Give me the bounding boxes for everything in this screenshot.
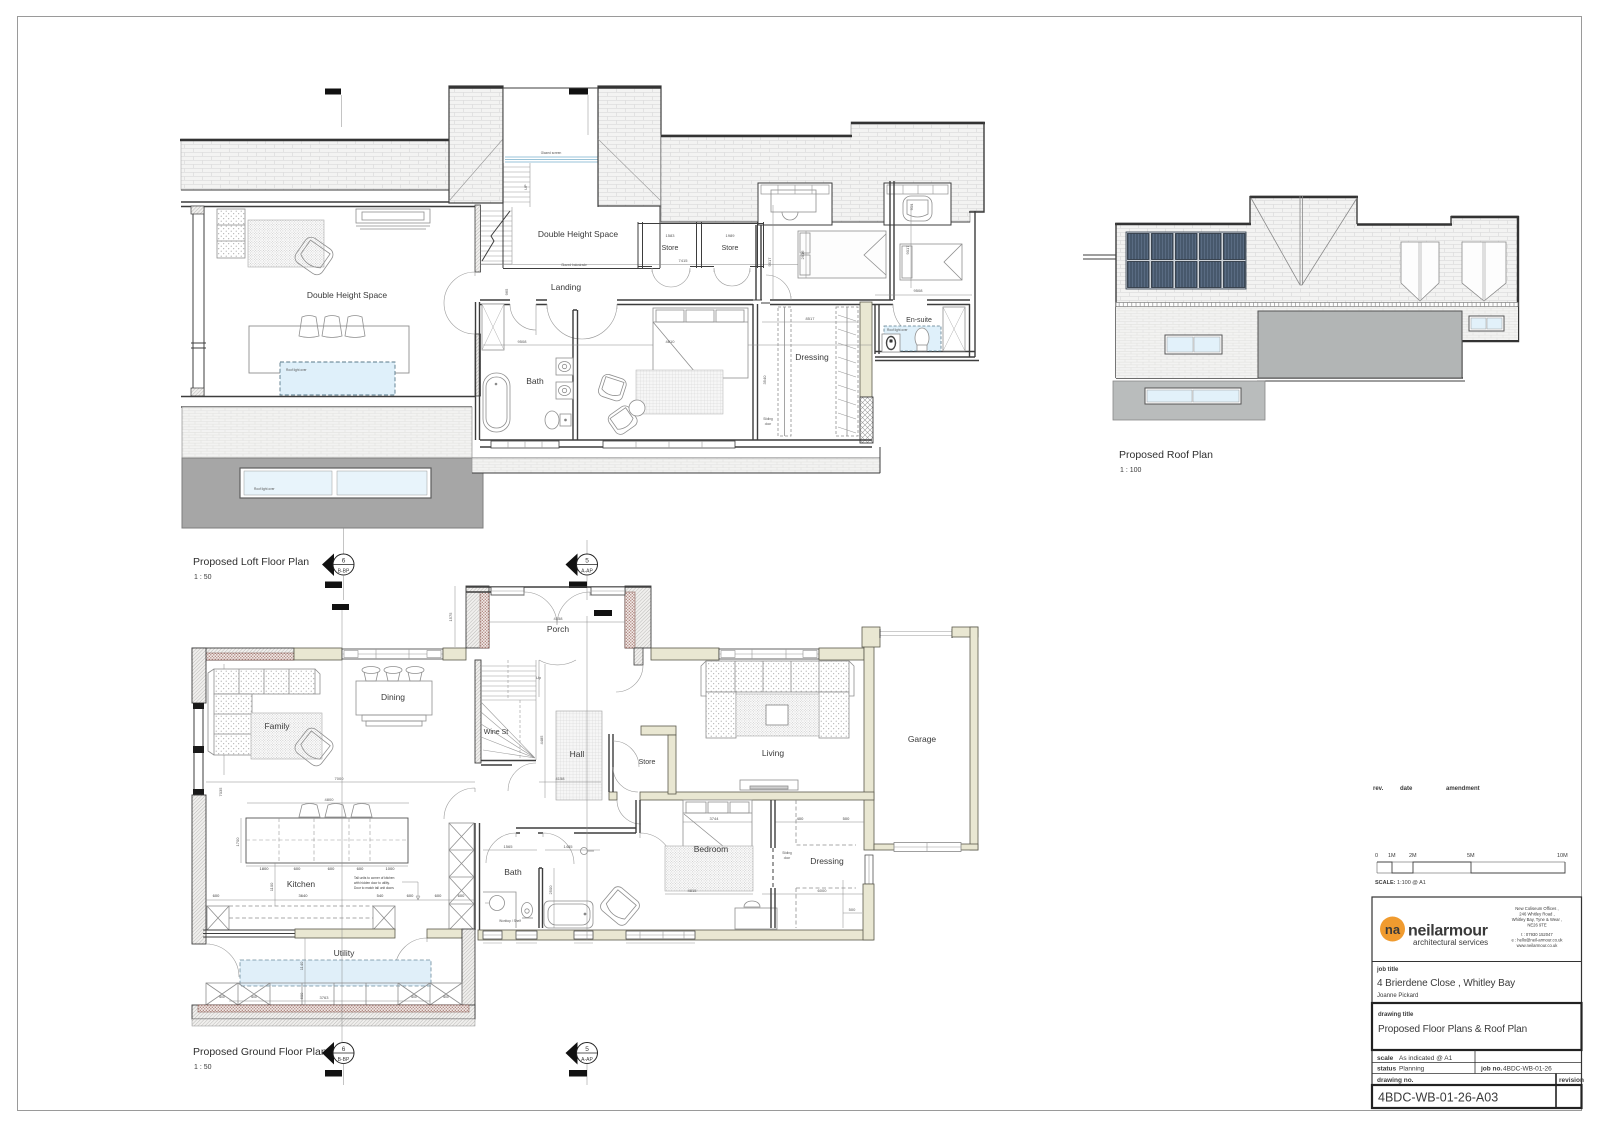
svg-text:Glazed screen: Glazed screen [541,151,562,155]
svg-text:drawing title: drawing title [1378,1012,1414,1018]
svg-text:1 : 100: 1 : 100 [1120,467,1142,474]
svg-text:Proposed Loft Floor Plan: Proposed Loft Floor Plan [193,556,309,568]
svg-text:Living: Living [762,748,784,758]
svg-text:revision: revision [1559,1077,1584,1084]
svg-text:1100: 1100 [269,882,274,891]
svg-text:amendment: amendment [1446,786,1480,792]
svg-text:Bedroom: Bedroom [694,844,729,854]
svg-text:Store: Store [639,759,656,766]
svg-text:Worktop / Shelf: Worktop / Shelf [499,919,521,923]
svg-text:1700: 1700 [235,837,240,847]
svg-text:2916: 2916 [800,250,805,260]
svg-text:600: 600 [328,866,335,871]
svg-text:UP: UP [523,184,528,190]
svg-text:Whitley Bay, Tyne & Wear ,: Whitley Bay, Tyne & Wear , [1512,917,1563,922]
svg-text:246 Whitley Road ,: 246 Whitley Road , [1519,912,1554,917]
svg-text:600: 600 [294,866,301,871]
svg-text:door: door [765,422,772,426]
svg-text:3763: 3763 [320,995,330,1000]
svg-text:6: 6 [342,558,346,565]
svg-text:400: 400 [797,816,804,821]
svg-text:B-BP: B-BP [338,569,350,575]
svg-text:1989: 1989 [726,233,736,238]
svg-text:914: 914 [909,203,914,210]
svg-text:1583: 1583 [666,233,676,238]
svg-text:9508: 9508 [518,339,528,344]
svg-text:Family: Family [264,721,290,731]
svg-text:Utility: Utility [334,948,356,958]
svg-text:Tall units to corner of kitche: Tall units to corner of kitchen [354,876,395,880]
svg-text:architectural services: architectural services [1413,938,1488,947]
svg-text:5: 5 [585,1046,589,1053]
svg-text:1140: 1140 [299,961,304,970]
svg-text:600: 600 [213,893,220,898]
svg-text:Sliding: Sliding [763,417,773,421]
svg-text:En-suite: En-suite [906,317,932,324]
svg-text:job no.: job no. [1480,1066,1502,1073]
svg-text:with hidden door to utility.: with hidden door to utility. [354,881,390,885]
svg-text:door: door [784,856,791,860]
svg-text:e : hello@neil-armour.co.uk: e : hello@neil-armour.co.uk [1511,938,1563,943]
svg-text:Planning: Planning [1399,1066,1425,1073]
svg-text:3540: 3540 [762,375,767,385]
svg-text:4BDC-WB-01-26: 4BDC-WB-01-26 [1503,1066,1552,1073]
svg-text:1800: 1800 [260,866,270,871]
svg-text:6000: 6000 [818,888,828,893]
svg-text:job title: job title [1376,967,1399,973]
svg-text:Proposed Roof Plan: Proposed Roof Plan [1119,449,1213,461]
svg-text:1485: 1485 [564,844,574,849]
svg-text:4BDC-WB-01-26-A03: 4BDC-WB-01-26-A03 [1378,1091,1498,1105]
svg-text:540: 540 [377,893,384,898]
svg-text:600: 600 [435,893,442,898]
svg-text:600: 600 [411,995,417,999]
svg-text:1M: 1M [1388,853,1396,859]
svg-text:t : 07930 152047: t : 07930 152047 [1521,932,1553,937]
svg-text:Porch: Porch [547,624,569,634]
svg-text:600: 600 [299,992,304,999]
svg-text:965: 965 [504,288,509,295]
svg-text:4810: 4810 [666,339,676,344]
svg-text:4800: 4800 [325,797,335,802]
svg-text:Store: Store [662,245,679,252]
svg-text:10M: 10M [1557,853,1568,859]
svg-text:Sliding: Sliding [782,851,792,855]
svg-text:na: na [1385,922,1401,937]
svg-text:5M: 5M [1467,853,1475,859]
svg-text:1 : 50: 1 : 50 [194,1064,212,1071]
svg-text:Glazed balustrade: Glazed balustrade [561,263,587,267]
svg-text:www.neilarmour.co.uk: www.neilarmour.co.uk [1517,943,1559,948]
svg-text:7000: 7000 [335,776,345,781]
svg-text:600: 600 [407,893,414,898]
svg-text:600: 600 [219,995,225,999]
svg-text:4158: 4158 [556,776,566,781]
svg-text:4 Brierdene Close , Whitley Ba: 4 Brierdene Close , Whitley Bay [1377,978,1515,989]
svg-text:Up: Up [536,675,542,680]
svg-text:4485: 4485 [539,735,544,745]
svg-text:Store: Store [722,245,739,252]
svg-text:Dining: Dining [381,692,405,702]
svg-text:9017: 9017 [905,245,910,255]
svg-text:7415: 7415 [679,258,689,263]
svg-text:2500: 2500 [548,885,553,895]
svg-text:4158: 4158 [554,616,564,621]
svg-text:neilarmour: neilarmour [1408,923,1488,940]
svg-text:Bath: Bath [526,376,544,386]
svg-text:A-AP: A-AP [581,569,593,575]
svg-text:500: 500 [849,907,856,912]
svg-text:scale: scale [1377,1055,1394,1062]
svg-text:Roof light over: Roof light over [286,368,307,372]
svg-text:2M: 2M [1409,853,1417,859]
svg-text:6: 6 [342,1046,346,1053]
svg-text:1000: 1000 [386,866,396,871]
svg-text:Proposed Floor Plans & Roof Pl: Proposed Floor Plans & Roof Plan [1378,1024,1527,1035]
svg-text:Roof light over: Roof light over [254,487,275,491]
svg-text:B-BP: B-BP [338,1057,350,1063]
svg-text:Double Height Space: Double Height Space [307,290,388,300]
svg-text:drawing no.: drawing no. [1377,1077,1414,1084]
svg-text:1565: 1565 [504,844,514,849]
svg-text:Wine St: Wine St [484,729,509,736]
svg-text:rev.: rev. [1373,786,1384,792]
svg-text:9517: 9517 [767,257,772,267]
svg-text:Bath: Bath [504,867,522,877]
svg-text:9508: 9508 [914,288,924,293]
svg-text:600: 600 [357,866,364,871]
svg-text:date: date [1400,786,1413,792]
svg-text:1575: 1575 [448,612,453,622]
svg-text:Dressing: Dressing [795,352,829,362]
svg-text:1 : 50: 1 : 50 [194,574,212,581]
svg-text:As indicated @ A1: As indicated @ A1 [1399,1055,1453,1062]
svg-text:SCALE: 1:100 @ A1: SCALE: 1:100 @ A1 [1375,880,1426,886]
svg-text:Proposed Ground Floor Plan: Proposed Ground Floor Plan [193,1046,327,1058]
svg-text:5: 5 [585,558,589,565]
svg-text:status: status [1377,1066,1397,1073]
svg-text:7035: 7035 [218,787,223,797]
svg-text:Joanne Pickard: Joanne Pickard [1377,993,1418,999]
svg-text:Kitchen: Kitchen [287,879,316,889]
svg-text:3744: 3744 [710,816,720,821]
svg-text:500: 500 [843,816,850,821]
svg-text:A-AP: A-AP [581,1057,593,1063]
svg-text:Landing: Landing [551,282,582,292]
svg-text:Garage: Garage [908,734,937,744]
svg-text:4815: 4815 [688,888,698,893]
svg-text:Door to match tall unit doors: Door to match tall unit doors [354,886,394,890]
svg-text:Hall: Hall [570,749,585,759]
svg-text:Roof light over: Roof light over [887,328,908,332]
svg-text:8517: 8517 [806,316,816,321]
svg-text:600: 600 [443,995,449,999]
svg-text:NE26 9TE: NE26 9TE [1527,923,1547,928]
svg-text:Double Height Space: Double Height Space [538,229,619,239]
svg-text:0: 0 [1375,853,1378,859]
svg-text:600: 600 [251,995,257,999]
svg-text:New Coliseum Offices ,: New Coliseum Offices , [1515,906,1558,911]
svg-text:Dressing: Dressing [810,856,844,866]
svg-text:3640: 3640 [299,893,309,898]
